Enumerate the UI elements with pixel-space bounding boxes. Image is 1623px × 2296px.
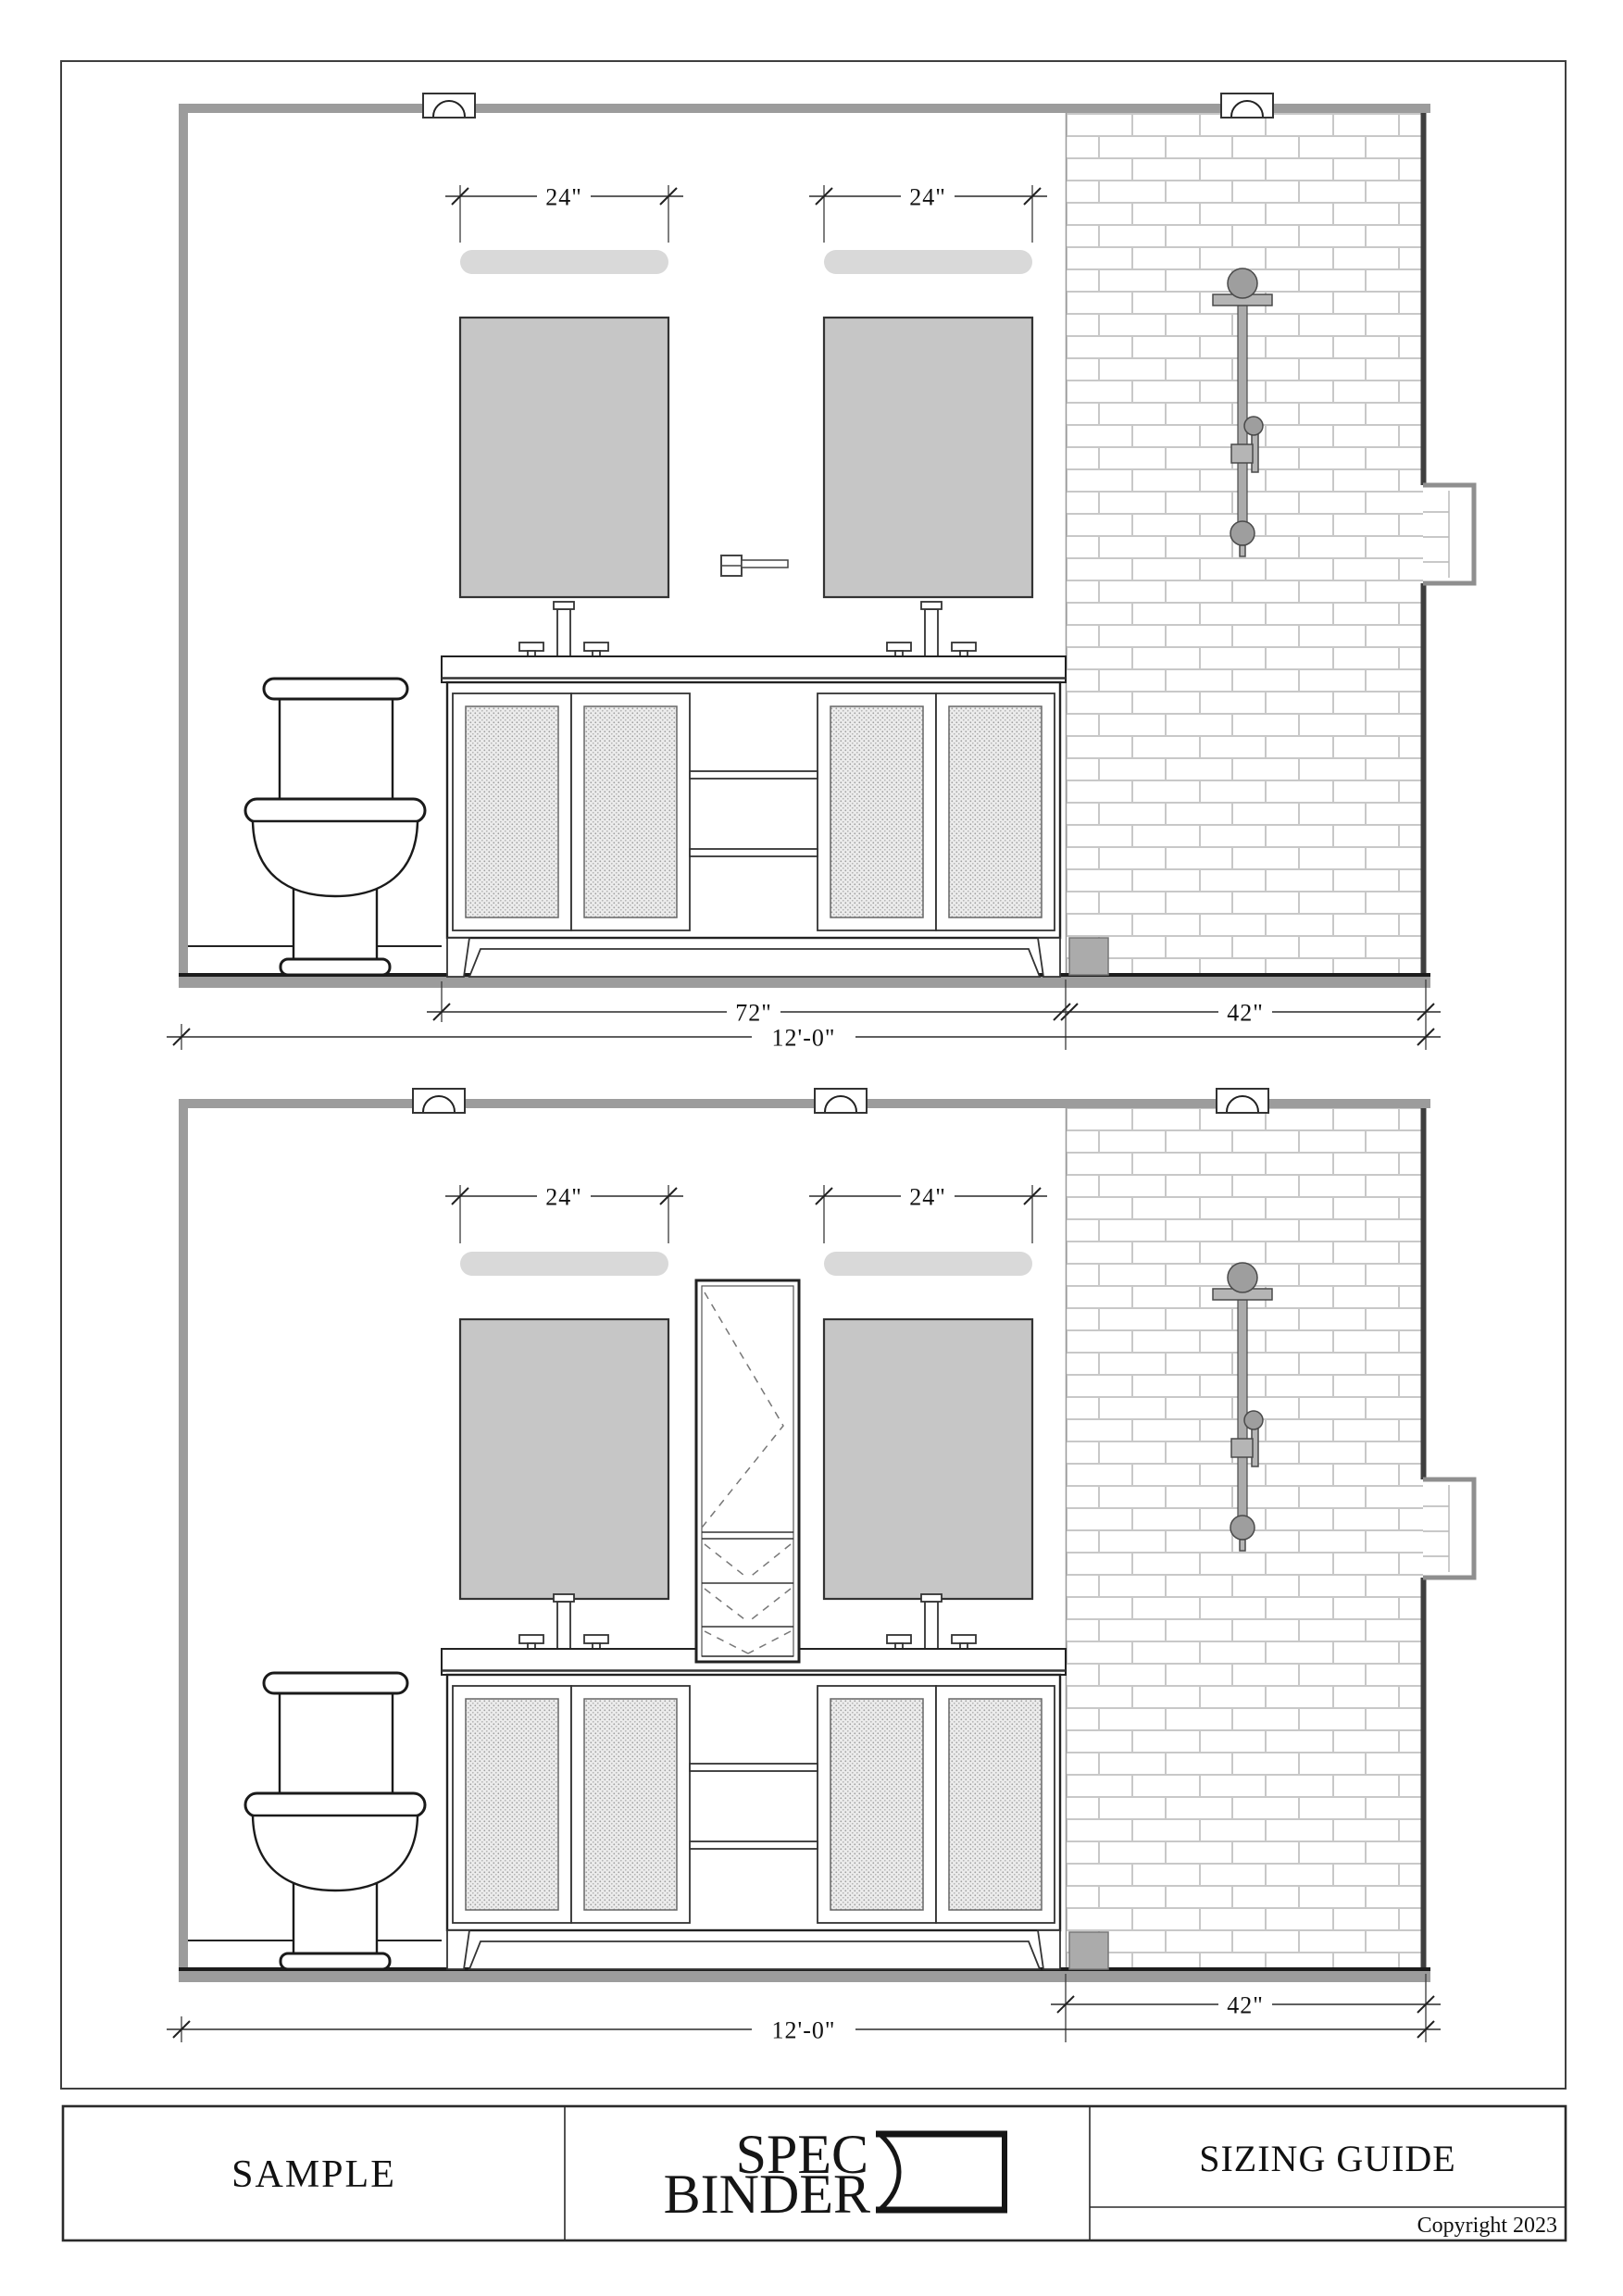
floor-shadow <box>179 977 1430 988</box>
curb <box>1069 938 1108 975</box>
logo-line-binder: BINDER <box>664 2164 870 2225</box>
copyright-label: Copyright 2023 <box>1417 2214 1557 2238</box>
dim-label: 24" <box>909 1184 946 1211</box>
shower-wall-top <box>1066 113 1474 975</box>
sample-label: SAMPLE <box>231 2153 396 2196</box>
floor-shadow <box>179 1971 1430 1982</box>
shower-wall-bottom <box>1066 1107 1474 1969</box>
sconce <box>1221 94 1273 118</box>
dim-label: 12'-0" <box>772 1025 836 1052</box>
dim-label: 42" <box>1227 1000 1264 1027</box>
curb <box>1069 1932 1108 1969</box>
sizing-guide-sheet: 24" 24" 72" 42" <box>0 0 1623 2296</box>
sizing-guide-label: SIZING GUIDE <box>1199 2138 1456 2179</box>
dim-label: 24" <box>545 1184 582 1211</box>
double-vanity <box>442 602 1066 977</box>
dim-label: 72" <box>735 1000 772 1027</box>
sconce <box>1217 1089 1268 1113</box>
sconce <box>423 94 475 118</box>
dim-label: 42" <box>1227 1992 1264 2019</box>
sconce <box>815 1089 867 1113</box>
dim-label: 24" <box>909 184 946 211</box>
dim-label: 12'-0" <box>772 2017 836 2044</box>
dim-label: 24" <box>545 184 582 211</box>
wall-left-edge <box>179 104 188 988</box>
wall-left-edge <box>179 1099 188 1982</box>
title-block: SAMPLE SPEC BINDER SIZING GUIDE Copyrigh… <box>63 2106 1566 2240</box>
linen-tower <box>696 1280 799 1662</box>
sconce <box>413 1089 465 1113</box>
